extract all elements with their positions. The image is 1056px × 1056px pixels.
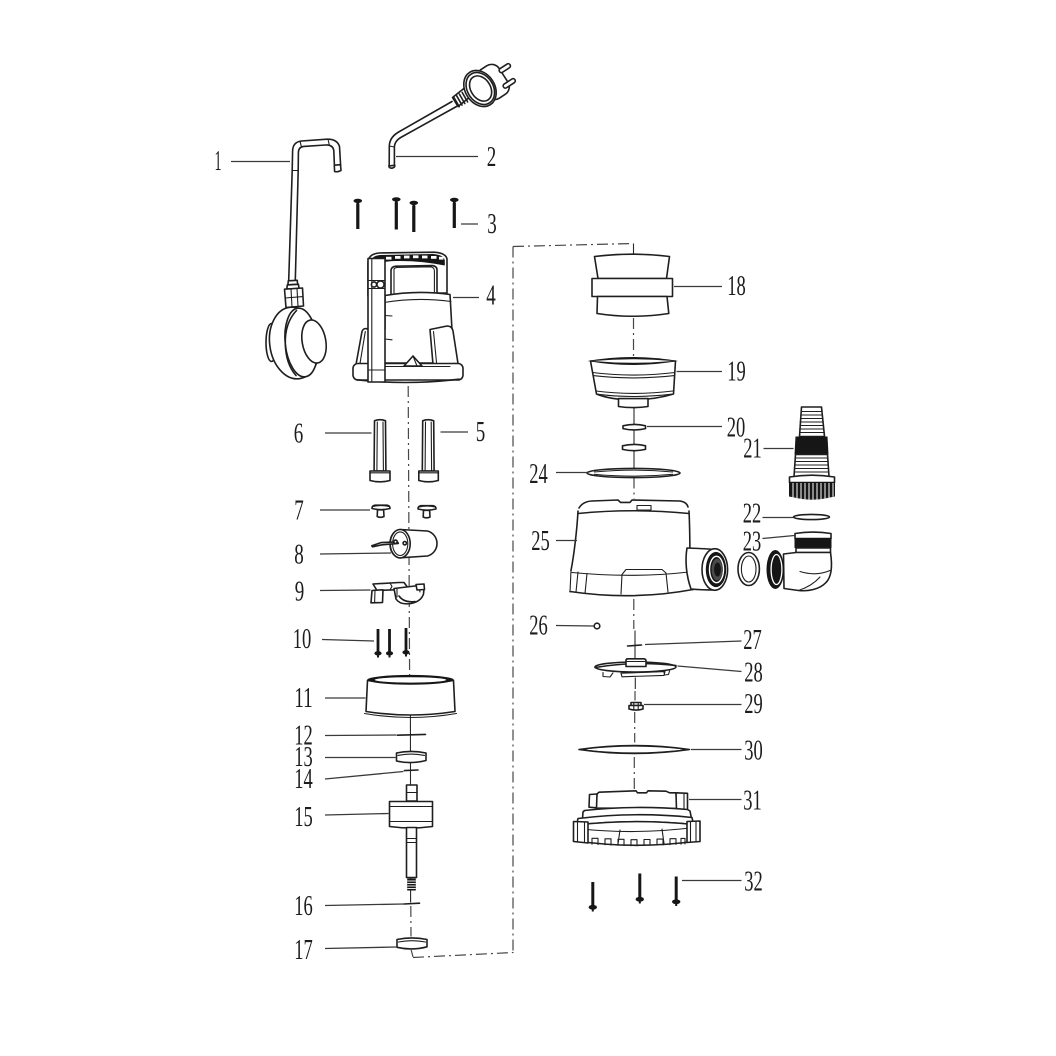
svg-text:7: 7 — [294, 496, 304, 527]
svg-text:17: 17 — [294, 935, 313, 966]
svg-text:11: 11 — [294, 683, 313, 714]
svg-text:14: 14 — [294, 764, 313, 795]
svg-text:4: 4 — [486, 281, 496, 312]
svg-text:9: 9 — [295, 577, 305, 608]
svg-text:3: 3 — [487, 209, 497, 240]
svg-text:18: 18 — [727, 271, 746, 302]
svg-text:28: 28 — [744, 658, 763, 689]
svg-text:8: 8 — [294, 540, 304, 571]
svg-text:24: 24 — [529, 459, 548, 490]
svg-text:21: 21 — [743, 434, 762, 465]
svg-text:6: 6 — [294, 419, 304, 450]
svg-text:32: 32 — [744, 867, 763, 898]
svg-text:15: 15 — [294, 802, 313, 833]
svg-text:19: 19 — [727, 357, 746, 388]
svg-text:22: 22 — [743, 499, 762, 530]
svg-text:29: 29 — [744, 689, 763, 720]
svg-text:16: 16 — [294, 891, 313, 922]
svg-text:25: 25 — [531, 526, 550, 557]
svg-text:27: 27 — [743, 625, 762, 656]
svg-text:10: 10 — [293, 624, 312, 655]
svg-text:1: 1 — [215, 146, 222, 177]
svg-text:5: 5 — [476, 417, 486, 448]
svg-text:26: 26 — [529, 611, 548, 642]
svg-text:30: 30 — [744, 736, 763, 767]
svg-text:2: 2 — [487, 142, 497, 173]
svg-text:31: 31 — [743, 786, 762, 817]
svg-text:23: 23 — [743, 527, 762, 558]
